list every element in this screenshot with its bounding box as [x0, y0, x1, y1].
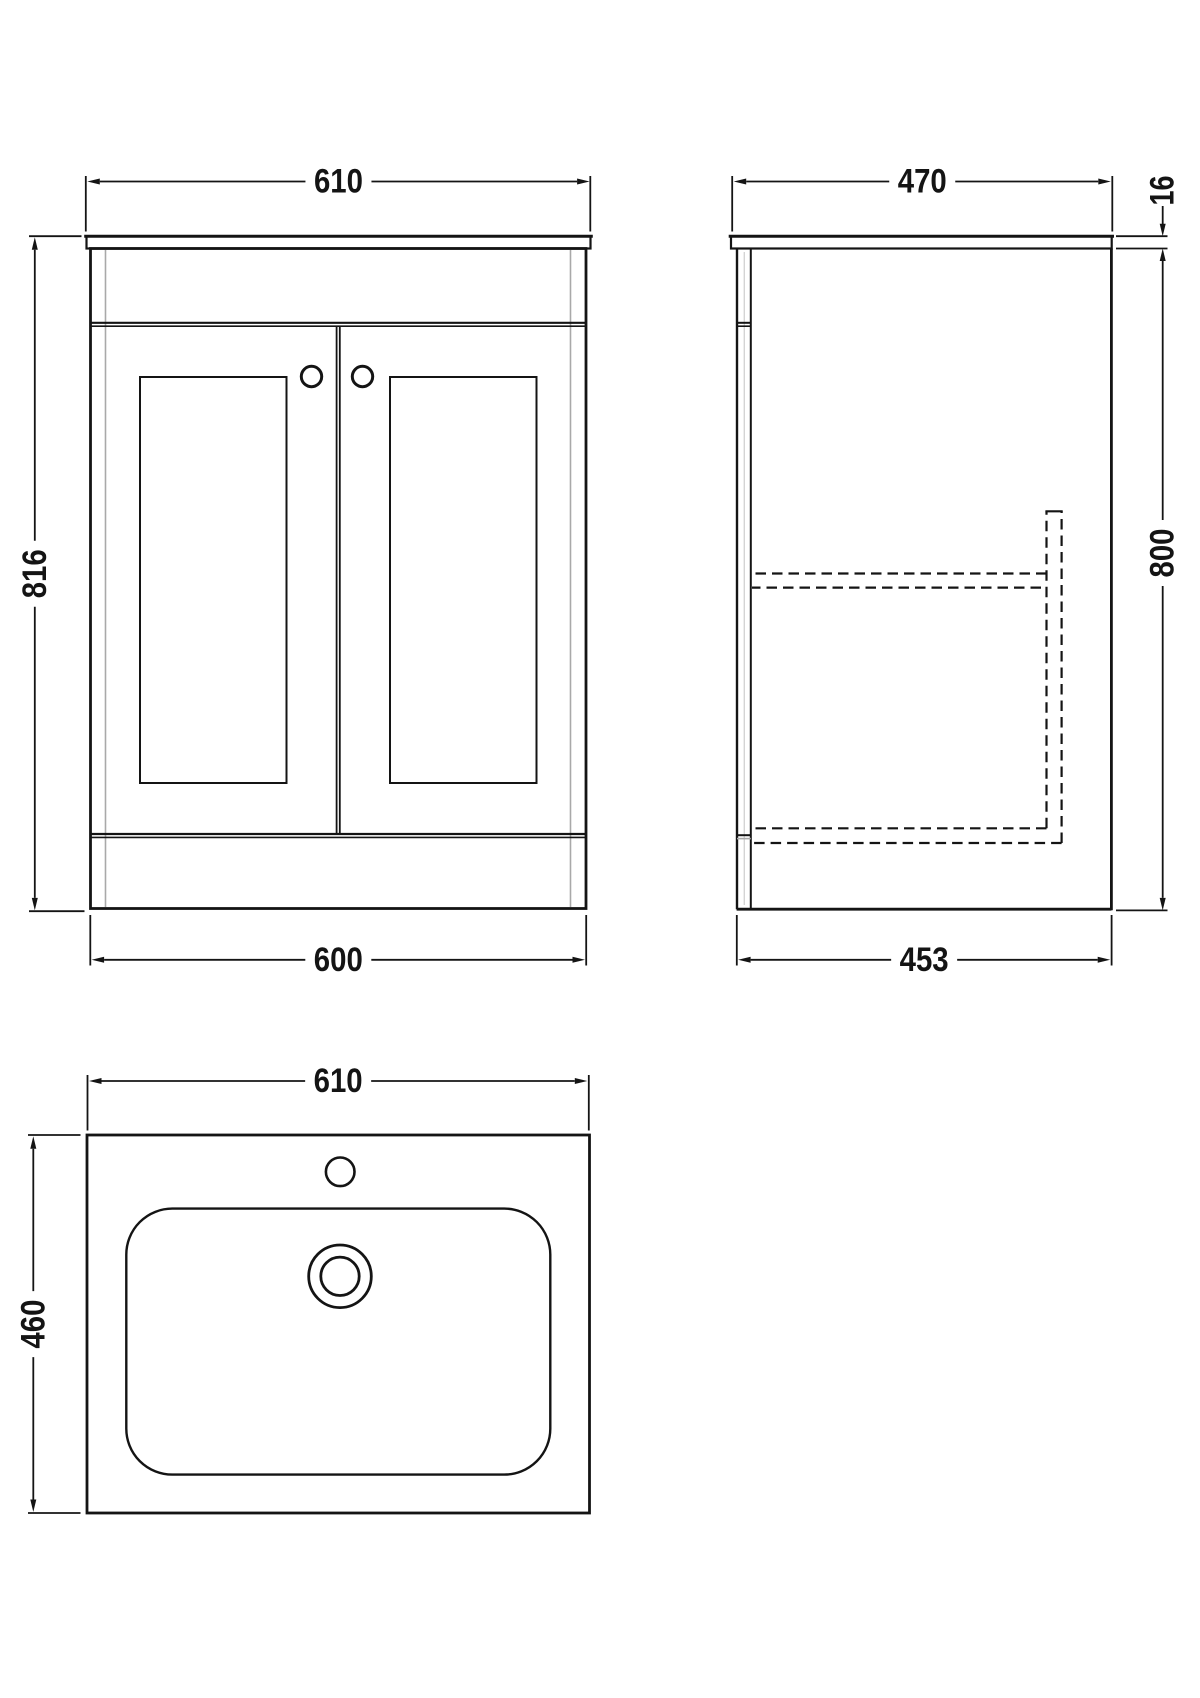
svg-text:610: 610: [314, 1062, 363, 1100]
svg-text:460: 460: [14, 1300, 52, 1349]
svg-text:610: 610: [314, 163, 363, 201]
svg-text:453: 453: [900, 941, 949, 979]
svg-text:800: 800: [1144, 529, 1182, 578]
svg-text:600: 600: [314, 941, 363, 979]
svg-text:816: 816: [16, 549, 54, 598]
svg-text:16: 16: [1144, 176, 1182, 206]
svg-text:470: 470: [898, 163, 947, 201]
